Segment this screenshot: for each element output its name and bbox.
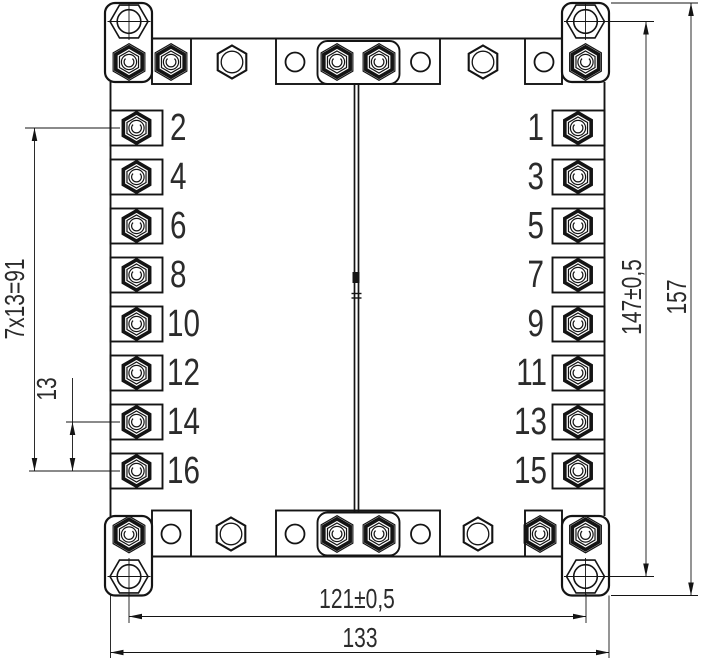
terminal-number: 11 (516, 352, 547, 394)
terminal-nut-icon (565, 260, 591, 290)
drawing-svg: 2 4 6 8 10 12 14 (0, 0, 701, 663)
terminal-2: 2 (111, 107, 187, 149)
terminal-1: 1 (528, 107, 605, 149)
dimension-vertical: 147±0,5 157 (604, 3, 698, 596)
terminal-number: 1 (528, 107, 544, 149)
right-terminal-column: 1 3 5 7 9 11 13 (514, 107, 604, 492)
dimension-label: 147±0,5 (617, 259, 648, 335)
arrowhead (688, 3, 694, 16)
dimension-terminal-pitch: 7x13=91 13 (0, 128, 120, 471)
center-divider (352, 84, 362, 512)
terminal-number: 9 (528, 303, 544, 345)
hex-recess-icon (218, 46, 247, 79)
dimension-label: 13 (32, 377, 63, 400)
terminal-nut-icon (565, 309, 591, 339)
terminal-4: 4 (111, 156, 187, 198)
terminal-number: 3 (528, 156, 544, 198)
terminal-nut-icon (565, 113, 591, 143)
dimension-horizontal: 121±0,5 133 (111, 584, 610, 658)
terminal-11: 11 (516, 352, 604, 394)
top-right-boss (525, 39, 562, 85)
terminal-number: 10 (167, 303, 200, 345)
terminal-15: 15 (514, 450, 604, 492)
dimension-label: 121±0,5 (319, 584, 395, 615)
terminal-nut-icon (123, 211, 149, 241)
arrowhead (129, 614, 142, 620)
terminal-13: 13 (514, 401, 604, 443)
mount-tab-bottom-right (562, 516, 609, 596)
terminal-nut-icon (363, 44, 395, 81)
terminal-3: 3 (528, 156, 605, 198)
bottom-terminal-row (152, 511, 562, 557)
terminal-nut-icon (123, 162, 149, 192)
dimension-label: 157 (662, 279, 693, 314)
bottom-center-boss (276, 511, 440, 557)
arrowhead (643, 564, 649, 577)
terminal-14: 14 (111, 401, 200, 443)
terminal-nut-icon (524, 516, 556, 553)
hex-recess-icon (217, 518, 246, 551)
arrowhead (70, 422, 76, 435)
mounting-tabs (105, 3, 609, 596)
round-hole-icon (535, 53, 554, 72)
terminal-nut-icon (123, 309, 149, 339)
hex-recess-icon (469, 46, 498, 79)
terminal-7: 7 (528, 254, 605, 296)
top-center-boss (276, 39, 440, 85)
terminal-number: 13 (514, 401, 547, 443)
round-hole-icon (411, 53, 430, 72)
arrowhead (688, 583, 694, 596)
terminal-nut-icon (565, 407, 591, 437)
terminal-nut-icon (321, 44, 353, 81)
arrowhead (111, 650, 124, 656)
bottom-left-boss (152, 511, 191, 557)
terminal-nut-icon (565, 456, 591, 486)
round-hole-icon (162, 525, 181, 544)
terminal-number: 15 (514, 450, 547, 492)
module-outline-drawing: 2 4 6 8 10 12 14 (0, 0, 701, 663)
terminal-nut-icon (565, 211, 591, 241)
dimension-label: 7x13=91 (0, 258, 31, 339)
terminal-nut-icon (565, 358, 591, 388)
arrowhead (596, 650, 609, 656)
arrowhead (643, 22, 649, 35)
terminal-12: 12 (111, 352, 200, 394)
round-hole-icon (411, 525, 430, 544)
terminal-nut-icon (123, 260, 149, 290)
terminal-nut-icon (123, 113, 149, 143)
arrowhead (32, 458, 38, 471)
round-hole-icon (286, 525, 305, 544)
terminal-nut-icon (565, 162, 591, 192)
terminal-10: 10 (111, 303, 200, 345)
terminal-6: 6 (111, 205, 187, 247)
hex-recess-icon (464, 518, 493, 551)
arrowhead (32, 128, 38, 141)
terminal-5: 5 (528, 205, 605, 247)
terminal-number: 7 (528, 254, 544, 296)
terminal-number: 2 (170, 107, 186, 149)
terminal-number: 8 (170, 254, 186, 296)
mount-tab-bottom-left (105, 516, 152, 596)
terminal-number: 6 (170, 205, 186, 247)
terminal-number: 14 (167, 401, 200, 443)
terminal-9: 9 (528, 303, 605, 345)
terminal-nut-icon (155, 44, 187, 81)
terminal-nut-icon (123, 407, 149, 437)
arrowhead (573, 614, 586, 620)
arrowhead (70, 458, 76, 471)
top-terminal-row (152, 39, 562, 85)
terminal-nut-icon (321, 516, 353, 553)
terminal-number: 5 (528, 205, 544, 247)
left-terminal-column: 2 4 6 8 10 12 14 (111, 107, 200, 492)
mount-tab-top-right (562, 3, 609, 82)
dimension-label: 133 (342, 623, 377, 654)
terminal-nut-icon (363, 516, 395, 553)
terminal-8: 8 (111, 254, 187, 296)
terminal-number: 4 (170, 156, 186, 198)
terminal-nut-icon (123, 358, 149, 388)
terminal-nut-icon (123, 456, 149, 486)
divider-joint-mark (353, 272, 360, 283)
mount-tab-top-left (105, 3, 152, 82)
round-hole-icon (286, 53, 305, 72)
terminal-16: 16 (111, 450, 200, 492)
terminal-number: 16 (167, 450, 200, 492)
terminal-number: 12 (167, 352, 200, 394)
